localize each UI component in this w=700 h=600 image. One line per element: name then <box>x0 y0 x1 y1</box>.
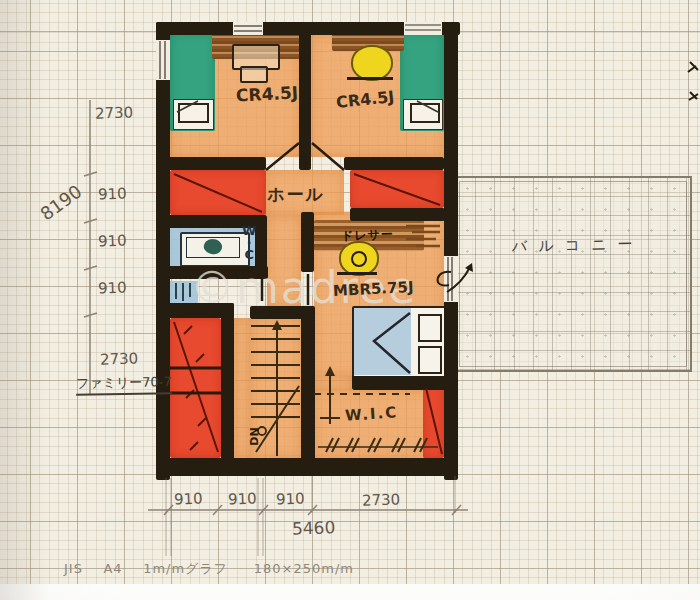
storage-shelf-lines <box>170 368 221 393</box>
wc-label: W · C <box>242 225 256 261</box>
child-room-left-label: CR4.5J <box>236 82 299 105</box>
dim-bottom-total-5460: 5460 <box>292 517 336 538</box>
extension-lines <box>166 476 455 556</box>
door-swing-lines <box>262 143 344 305</box>
stairs-down-label: DN <box>248 427 261 445</box>
hall-label: ホール <box>267 183 325 206</box>
bed-fold-lines <box>177 101 438 373</box>
cropped-ink-marks <box>688 62 698 100</box>
wic-label: W.I.C <box>344 403 398 425</box>
washbasin-strokes <box>176 283 190 301</box>
wc-label-c: C <box>244 249 254 261</box>
balcony-door-arrow <box>438 263 473 292</box>
family-note: ファミリー70-7 <box>76 373 172 396</box>
dim-left-2730-top: 2730 <box>95 103 134 122</box>
dim-bottom-2730: 2730 <box>362 490 401 509</box>
closet-hatch-lines <box>174 174 442 454</box>
dim-bottom-910-3: 910 <box>276 490 305 509</box>
dim-left-910-1: 910 <box>98 185 127 204</box>
dim-bottom-910-1: 910 <box>174 490 203 509</box>
linework-overlay <box>0 0 700 600</box>
photo-bottom-edge <box>0 584 700 600</box>
dim-left-910-3: 910 <box>98 279 127 298</box>
dim-left-910-2: 910 <box>98 232 127 251</box>
floor-plan-photo: バルコニー <box>0 0 700 600</box>
dim-bottom-910-2: 910 <box>228 490 257 509</box>
mbr-corner-wood-marks <box>406 226 440 246</box>
dim-left-2730-bottom: 2730 <box>100 349 139 368</box>
paper-footer: JIS A4 1m/mグラフ 180×250m/m <box>64 560 354 578</box>
window-glass-lines <box>160 25 452 301</box>
dresser-label: ドレサー <box>341 226 394 245</box>
